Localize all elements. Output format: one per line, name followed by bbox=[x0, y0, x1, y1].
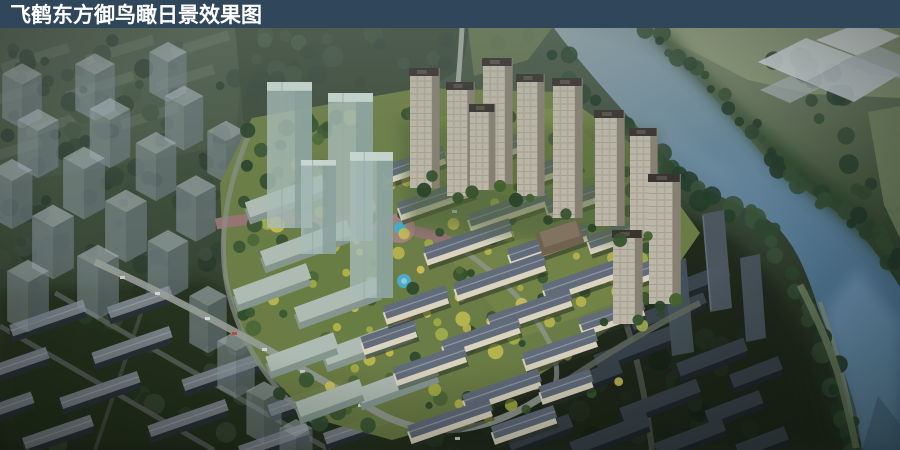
svg-text:飞鹤东方御鸟瞰日景效果图: 飞鹤东方御鸟瞰日景效果图 bbox=[10, 3, 262, 27]
